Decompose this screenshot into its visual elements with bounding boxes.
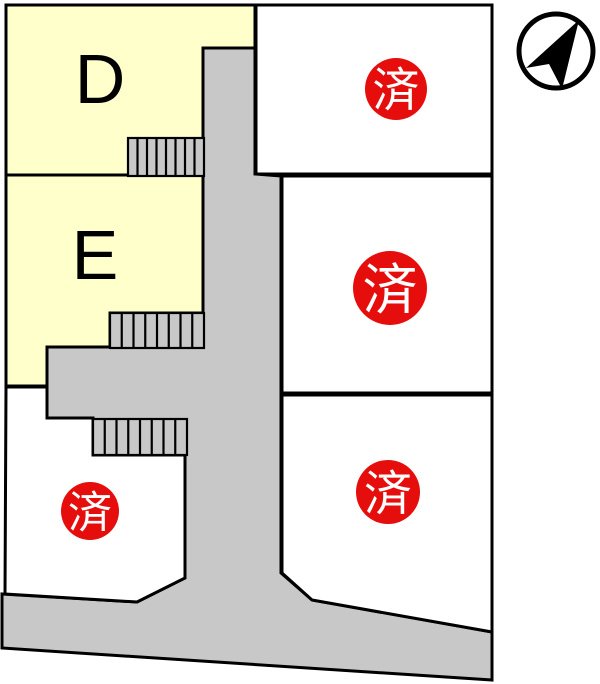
sold-badge-label: 済	[68, 488, 112, 539]
stairs-lot-d	[128, 138, 204, 176]
sold-badge-middle-right: 済	[353, 251, 427, 325]
sold-badge-bottom-right: 済	[356, 460, 420, 524]
sold-badge-label: 済	[373, 64, 420, 119]
sold-badge-top-right: 済	[365, 58, 427, 120]
north-arrow-icon	[519, 14, 593, 89]
lot-e-label: E	[72, 216, 119, 294]
lot-d-label: D	[75, 40, 126, 118]
sold-badge-label: 済	[362, 258, 417, 322]
sold-badge-bottom-left: 済	[61, 482, 119, 540]
site-plan-canvas: D E 済 済 済 済	[0, 0, 600, 684]
stairs-lot-bottom-left	[93, 419, 187, 455]
stairs-lot-e	[110, 313, 204, 348]
sold-badge-label: 済	[364, 466, 412, 522]
